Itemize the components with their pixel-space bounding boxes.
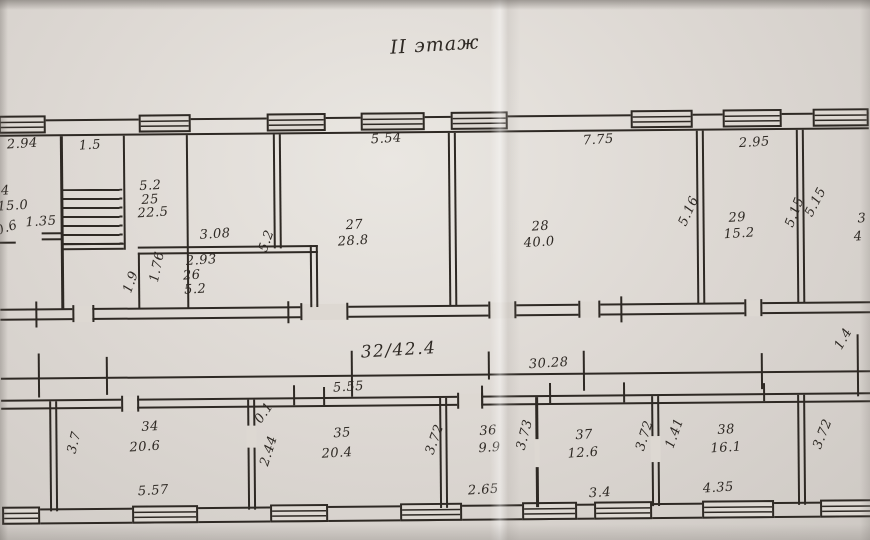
window-symbol [267,113,326,132]
dim-3-72-c: 3.72 [810,417,835,451]
tick [549,383,551,403]
floor-title: II этаж [389,31,480,58]
door-opening [457,394,481,408]
door-jamb [121,396,123,412]
door-opening [650,436,660,462]
wall [0,311,870,321]
door-jamb [346,303,348,320]
room-35-area: 20.4 [321,445,353,462]
window-symbol [813,108,869,126]
window-symbol [0,115,46,133]
dim-3-7: 3.7 [65,430,85,455]
room-36-number: 36 [479,423,497,439]
room-37-number: 37 [575,427,593,443]
tick [38,353,40,397]
room-28-area: 40.0 [523,234,555,251]
tick [35,301,37,327]
window-symbol [702,500,774,519]
door-jamb [598,301,600,318]
tick [106,357,108,395]
door-opening [246,426,256,448]
window-symbol [361,112,425,131]
door-jamb [300,303,302,320]
wall [439,398,448,508]
dim-7-75: 7.75 [582,132,614,149]
tick [488,352,490,380]
room-34-number: 34 [141,419,159,435]
room-35-number: 35 [333,425,351,441]
room-34-area: 20.6 [129,439,161,456]
tick [857,334,860,396]
wall [696,131,706,304]
window-symbol [820,499,870,517]
window-symbol [400,503,462,522]
window-symbol [631,110,693,129]
wall [310,245,319,307]
door-jamb [137,396,139,412]
door-jamb [92,305,94,322]
dim-5-57: 5.57 [137,483,169,500]
corridor-label: 32/42.4 [360,338,437,363]
room-38-area: 16.1 [710,440,742,457]
tick [623,382,625,402]
staircase [62,189,122,246]
room-29-area: 15.2 [723,225,755,242]
door-opening [300,304,348,320]
stair-landing-edge [63,248,124,251]
dim-1-76: 1.76 [147,250,168,283]
dim-5-15-b: 5.15 [802,185,830,219]
dim-1-41: 1.41 [663,416,687,450]
room-25-area: 22.5 [137,205,169,222]
wall [797,395,806,505]
room-28-number: 28 [531,219,549,235]
fixture-line [0,242,16,244]
room-27-area: 28.8 [337,233,369,250]
window-symbol [451,111,508,129]
room-27-number: 27 [345,217,363,233]
tick [287,301,289,323]
wall [448,133,458,306]
room-26-area: 5.2 [184,281,207,297]
door-jamb [72,305,74,322]
door-opening [72,306,92,322]
tick [583,351,585,391]
door-opening [578,302,600,318]
door-jamb [457,393,459,409]
door-jamb [744,299,746,316]
dim-30-28: 30.28 [528,355,569,372]
room-29-number: 29 [728,210,746,226]
door-opening [534,439,539,467]
dim-5-54: 5.54 [370,130,402,147]
room-30-area-partial: 4 [853,229,863,245]
door-jamb [488,302,490,319]
room-37-area: 12.6 [567,445,599,462]
wall [0,301,870,311]
fixture-line [42,232,62,234]
dim-2-94: 2.94 [6,136,38,153]
window-symbol [594,501,652,520]
room-30-number-partial: 3 [857,211,867,227]
wall [49,401,58,511]
fixture-line [42,238,62,240]
dim-2-95: 2.95 [738,134,770,151]
dim-1-5: 1.5 [78,137,101,153]
dim-3-4: 3.4 [589,485,612,501]
room-36-area: 9.9 [478,440,501,456]
dim-2-44: 2.44 [257,434,281,468]
door-jamb [578,301,580,318]
window-symbol [2,506,40,524]
door-opening [488,302,516,318]
dim-0-1: 0.1 [252,400,277,427]
room-38-number: 38 [717,422,735,438]
window-symbol [139,114,191,132]
room-24-number: 24 [0,183,10,199]
tick [293,385,295,405]
door-opening [121,397,137,411]
tick [620,296,622,322]
dim-0-6: 0.6 [0,218,20,239]
dim-1-35: 1.35 [25,214,57,231]
window-symbol [270,504,328,523]
door-jamb [481,393,483,409]
window-symbol [522,502,577,520]
plan-drawing: II этаж [0,0,870,540]
door-jamb [514,301,516,318]
window-symbol [723,109,782,128]
scanned-floor-plan: II этаж [0,0,870,540]
window-symbol [132,505,198,524]
door-jamb [760,299,762,316]
dim-1-4: 1.4 [832,326,856,353]
stair-landing-edge [63,243,124,246]
dimension-line [1,370,870,380]
dim-4-35: 4.35 [702,480,734,497]
dim-2-65: 2.65 [467,482,499,499]
dim-3-08: 3.08 [199,226,231,243]
wall [123,136,126,250]
dim-3-73: 3.73 [514,418,536,452]
room-24-area: 15.0 [0,198,29,215]
dim-2-93: 2.93 [185,252,217,269]
dim-5-55: 5.55 [333,379,365,396]
